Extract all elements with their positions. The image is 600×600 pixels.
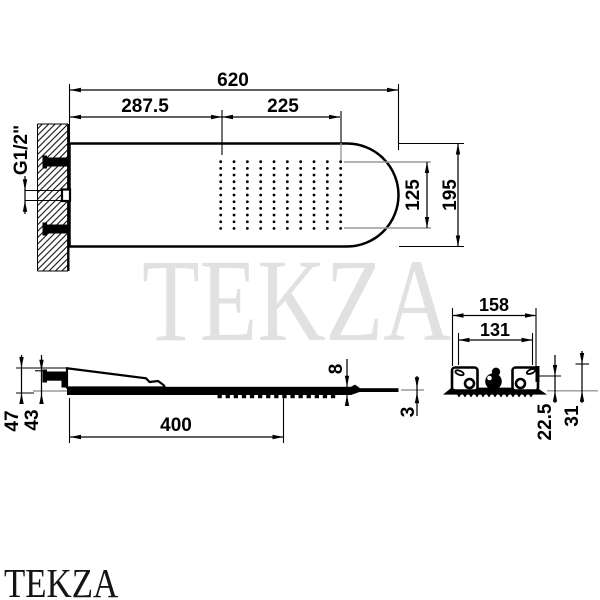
- screw-hole-right: [516, 379, 525, 388]
- side-view: 47 43 400 8 3: [2, 355, 424, 443]
- dim-400-label: 400: [160, 415, 192, 436]
- dim-195-label: 195: [440, 179, 461, 211]
- watermark-center: TEKZA: [142, 236, 451, 366]
- inlet-port: [62, 190, 70, 202]
- dim-22-5-label: 22.5: [535, 403, 556, 440]
- inlet-stub-side: [43, 370, 68, 383]
- dim-3-label: 3: [398, 407, 419, 418]
- dim-158-label: 158: [479, 295, 509, 315]
- nozzle-dashes: [218, 395, 336, 398]
- inlet-thread-label: G1/2": [11, 125, 32, 175]
- end-view: 158 131 22.5 31: [443, 295, 598, 440]
- screw-hole-left: [465, 379, 474, 388]
- dim-47-label: 47: [2, 410, 23, 431]
- dimension-drawing: TEKZA: [0, 0, 600, 600]
- plate-thin-profile: [358, 388, 399, 392]
- dim-8-label: 8: [326, 364, 347, 375]
- dim-131-label: 131: [480, 320, 510, 340]
- dim-287-label: 287.5: [121, 96, 169, 117]
- dim-225-label: 225: [267, 96, 299, 117]
- dim-43-label: 43: [22, 409, 43, 430]
- inlet-section: [485, 368, 502, 390]
- plate-thick-profile: [67, 387, 351, 395]
- bracket-profile: [67, 368, 165, 387]
- dim-125-label: 125: [403, 179, 424, 211]
- watermark-corner: TEKZA: [4, 561, 119, 600]
- bracket-tab: [536, 366, 540, 382]
- dim-620-label: 620: [217, 70, 249, 91]
- dim-31-label: 31: [562, 405, 583, 427]
- technical-drawing-page: TEKZA: [0, 0, 600, 600]
